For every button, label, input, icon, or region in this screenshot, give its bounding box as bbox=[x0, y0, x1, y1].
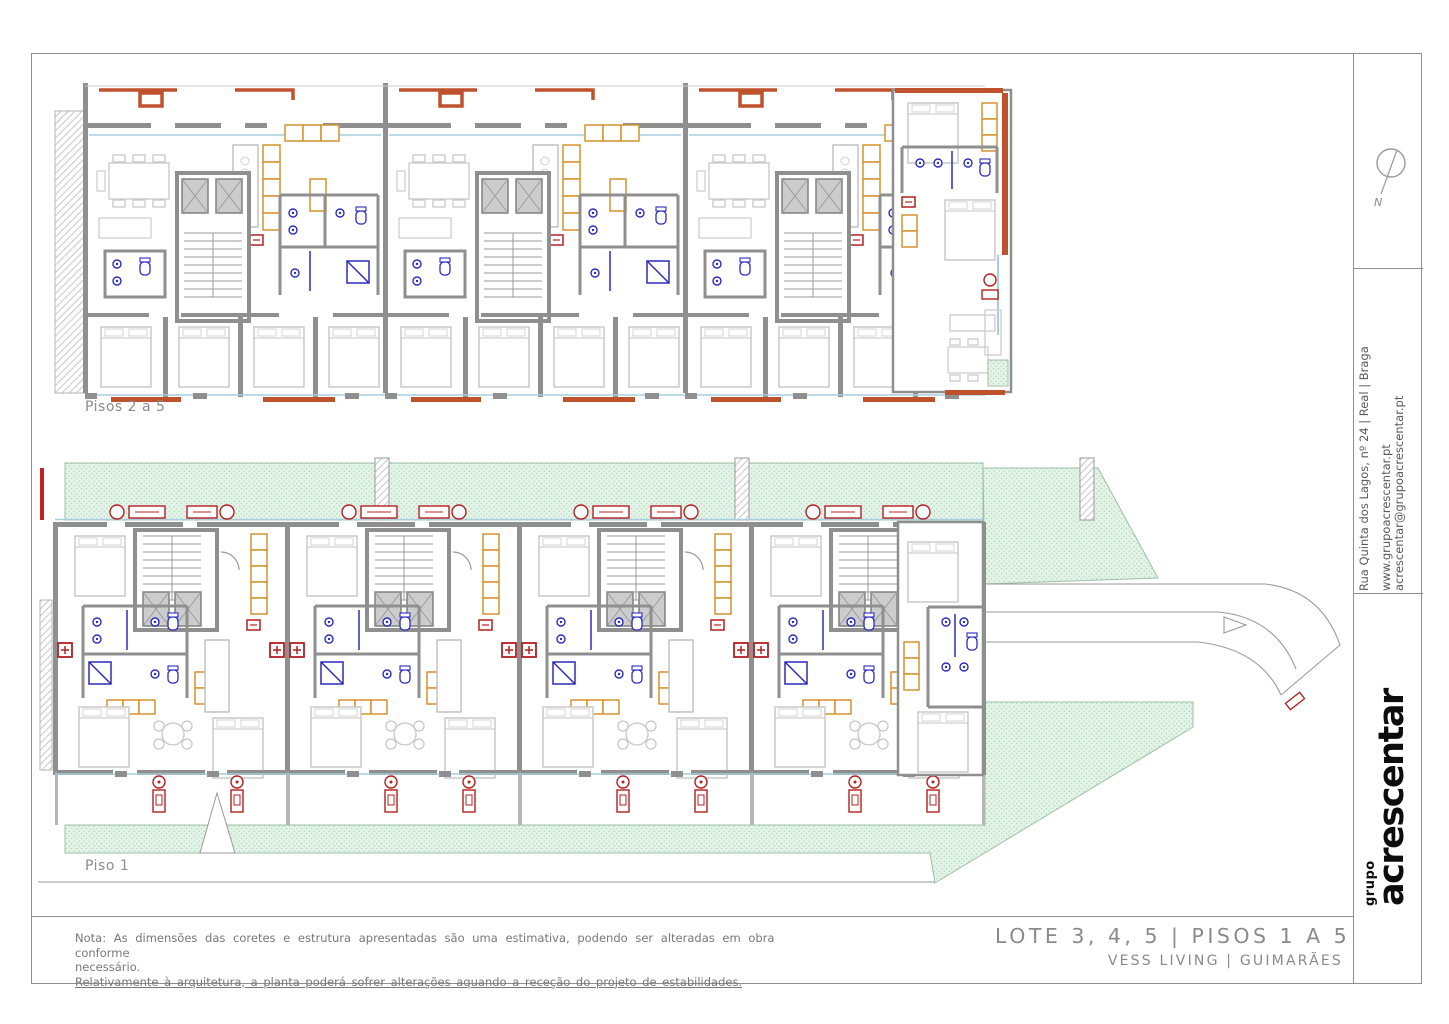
project-title: LOTE 3, 4, 5 | PISOS 1 A 5 bbox=[995, 924, 1343, 948]
drawing-sheet: Pisos 2 a 5 bbox=[0, 0, 1449, 1024]
plan-label-pisos-2-5: Pisos 2 a 5 bbox=[85, 399, 165, 415]
company-website: www.grupoacrescentar.pt bbox=[1380, 266, 1394, 591]
end-unit bbox=[893, 88, 1011, 395]
note-line-3: Relativamente à arquitetura, a planta po… bbox=[75, 975, 787, 990]
company-address: Rua Quinta dos Lagos, nº 24 | Real | Bra… bbox=[1358, 266, 1372, 591]
titleblock-divider bbox=[1353, 53, 1354, 984]
road-red-tag bbox=[1285, 692, 1304, 709]
green-area-right bbox=[983, 468, 1158, 584]
planter-green bbox=[988, 360, 1008, 386]
plan-label-piso-1: Piso 1 bbox=[85, 858, 129, 874]
note-line-2: necessário. bbox=[75, 960, 787, 975]
floor-plan-piso-1 bbox=[38, 455, 1353, 900]
notes-block: Nota: As dimensões das coretes e estrutu… bbox=[75, 931, 787, 989]
north-arrow: N bbox=[1360, 130, 1424, 214]
adjacent-building-hatch bbox=[55, 111, 85, 393]
end-unit bbox=[898, 522, 983, 775]
floor-plan-pisos-2-5 bbox=[40, 75, 1015, 420]
ramp-marking bbox=[200, 793, 235, 853]
red-marker-bar bbox=[40, 468, 44, 520]
adjacent-hatch bbox=[40, 600, 52, 770]
column-divider-2 bbox=[1353, 593, 1423, 594]
note-line-1: Nota: As dimensões das coretes e estrutu… bbox=[75, 931, 787, 960]
company-email: acrescentar@grupoacrescentar.pt bbox=[1393, 266, 1407, 591]
north-label: N bbox=[1374, 196, 1382, 209]
logo-text-acrescentar: acrescentar bbox=[1375, 638, 1410, 906]
title-block: LOTE 3, 4, 5 | PISOS 1 A 5 VESS LIVING |… bbox=[995, 924, 1343, 969]
project-subtitle: VESS LIVING | GUIMARÃES bbox=[995, 953, 1343, 969]
notes-band-divider bbox=[31, 916, 1353, 917]
